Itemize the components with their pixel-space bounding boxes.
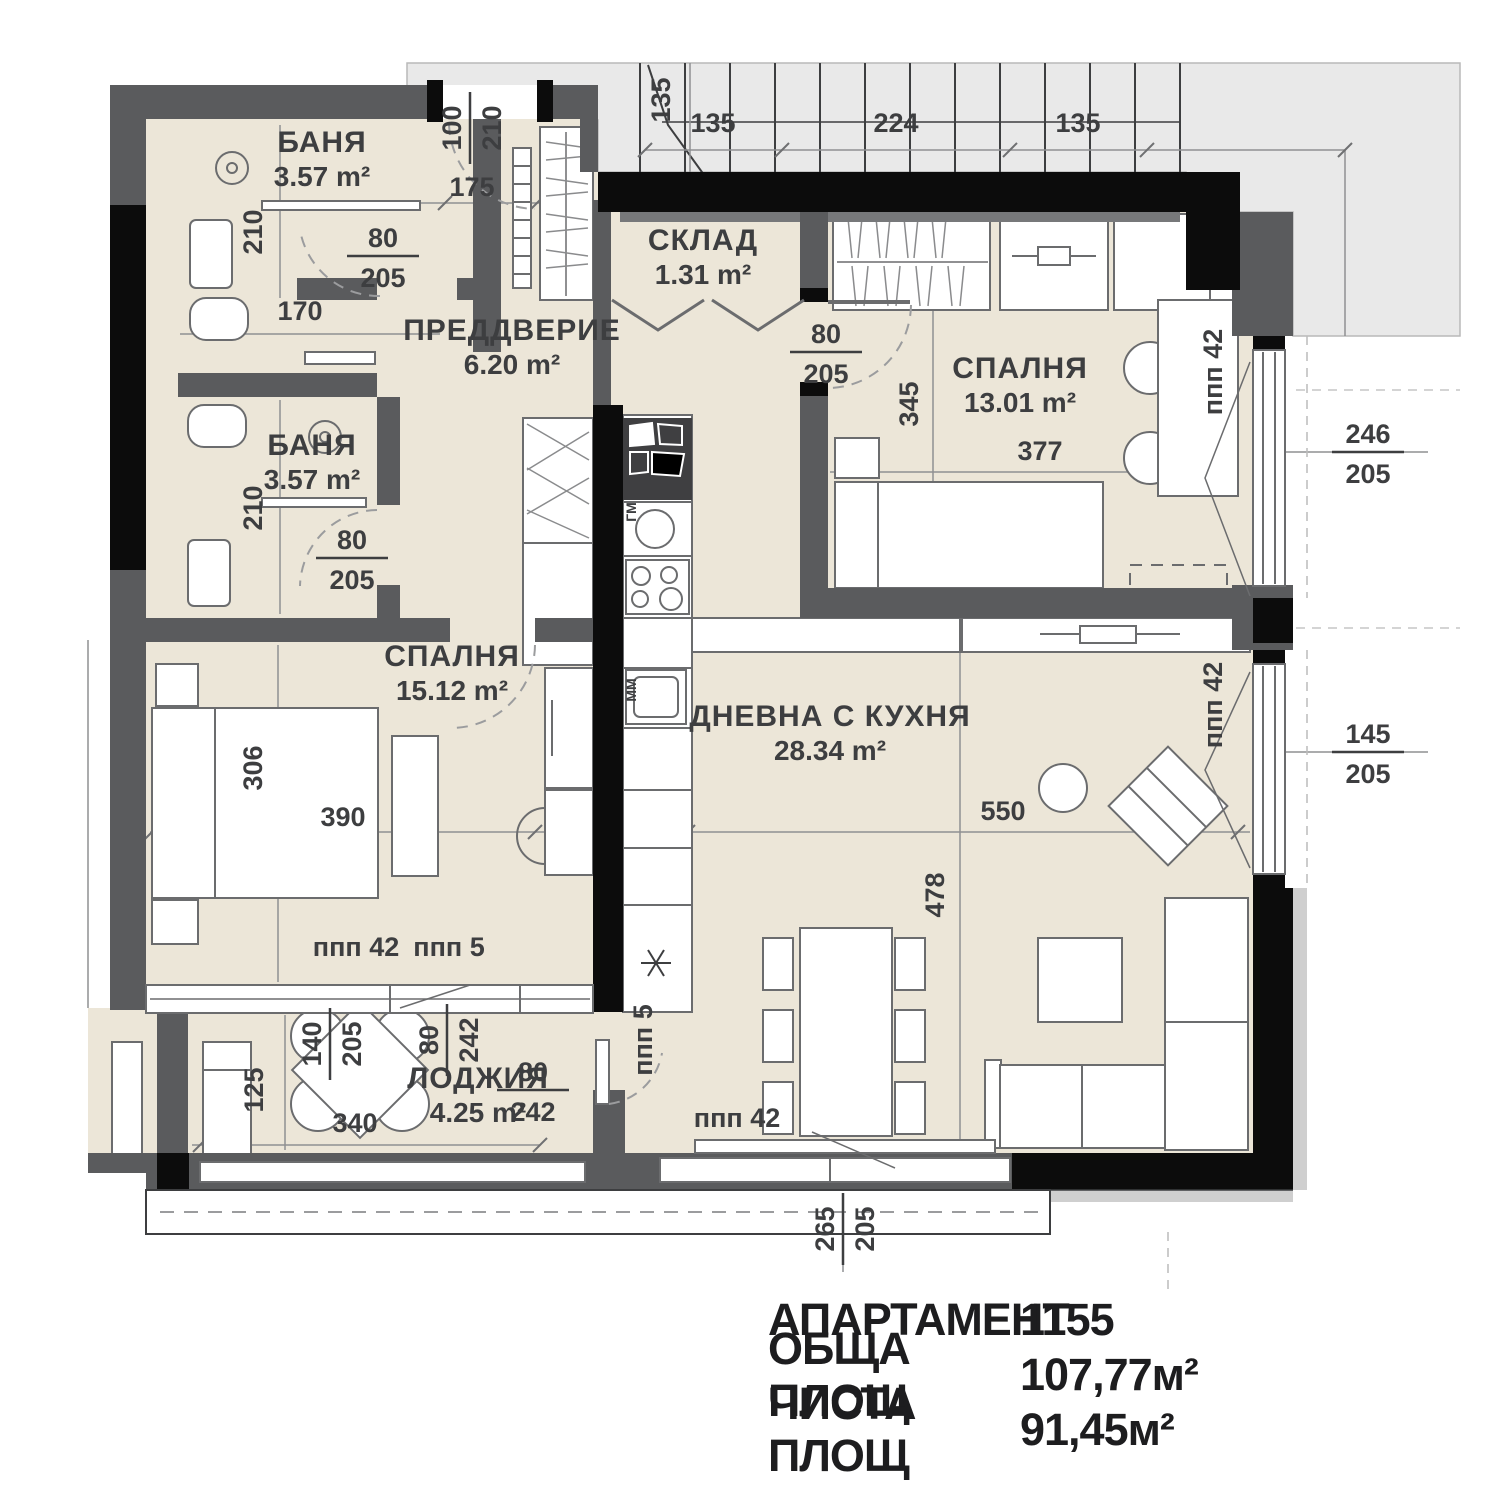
summary-value: 107,77м² xyxy=(1020,1349,1198,1401)
dimension-label: 125 xyxy=(239,1067,269,1112)
bench xyxy=(392,736,438,876)
fraction-top: 80 xyxy=(518,1057,548,1087)
dimension-label: 175 xyxy=(449,172,494,202)
fraction-bottom: 242 xyxy=(510,1097,555,1127)
sink-2 xyxy=(188,540,230,606)
wall-sklad-left xyxy=(593,200,611,405)
fraction-bottom: 242 xyxy=(454,1017,484,1062)
fraction-top: 265 xyxy=(810,1206,840,1251)
wall-top-black xyxy=(598,172,1186,212)
dresser-bedroom13 xyxy=(1000,214,1108,310)
room-label-spalnya-13: СПАЛНЯ xyxy=(952,352,1088,385)
room-area-banya-1: 3.57 m² xyxy=(274,161,371,192)
dining-set xyxy=(763,928,925,1136)
dimension-label: 224 xyxy=(873,108,918,138)
wall-right-top xyxy=(1232,212,1293,336)
loggia-parapet-glass xyxy=(200,1162,585,1182)
fraction-bottom: 205 xyxy=(803,359,848,389)
sink-1 xyxy=(190,220,232,288)
toilet-2 xyxy=(188,405,246,447)
fraction-bottom: 205 xyxy=(360,263,405,293)
room-area-sklad: 1.31 m² xyxy=(655,259,752,290)
wall-right-black xyxy=(1253,888,1293,1190)
dimension-label: 135 xyxy=(1055,108,1100,138)
fraction-top: 80 xyxy=(368,223,398,253)
wall-bedroom13-bottom xyxy=(800,588,1253,618)
room-label-sklad: СКЛАД xyxy=(648,224,758,257)
wall-kitchen-black xyxy=(593,405,623,1012)
room-area-spalnya-15: 15.12 m² xyxy=(396,675,508,706)
summary-value: 91,45м² xyxy=(1020,1404,1174,1456)
dimension-label: 135 xyxy=(690,108,735,138)
cabinet-symbol-4 xyxy=(652,452,684,476)
toilet-1 xyxy=(190,298,248,340)
room-area-preddverie: 6.20 m² xyxy=(464,349,561,380)
floor-plan-drawing: БАНЯ3.57 m²БАНЯ3.57 m²ПРЕДДВЕРИЕ6.20 m²С… xyxy=(0,0,1500,1500)
kitchen-sink xyxy=(636,510,674,548)
fraction-top: 80 xyxy=(337,525,367,555)
mirror-shelf-2 xyxy=(262,498,366,507)
radiator xyxy=(513,148,531,288)
wall-connector xyxy=(580,119,598,172)
loggia-door-leaf xyxy=(596,1040,609,1104)
fraction-top: 140 xyxy=(297,1021,327,1066)
console-shelf xyxy=(305,352,375,364)
fraction-bottom: 205 xyxy=(1345,759,1390,789)
nightstand-bottom xyxy=(152,900,198,944)
summary-label: ЧИСТА ПЛОЩ xyxy=(768,1378,1020,1482)
dimension-label: ММ xyxy=(623,678,639,701)
room-area-spalnya-13: 13.01 m² xyxy=(964,387,1076,418)
cabinet-symbol-1 xyxy=(630,423,654,446)
fraction-bottom: 205 xyxy=(850,1206,880,1251)
wall-bedroom15-top xyxy=(146,618,450,642)
dimension-label: ппп 5 xyxy=(413,932,484,962)
fraction-dimension: 246205 xyxy=(1332,419,1404,489)
fraction-top: 246 xyxy=(1345,419,1390,449)
wall-loggia-left xyxy=(157,1008,188,1153)
dimension-label: 340 xyxy=(332,1108,377,1138)
apartment-summary: АПАРТАМЕНТ 1155 ОБЩА ПЛОЩ 107,77м² ЧИСТА… xyxy=(768,1292,1368,1457)
wall-bedroom13-left xyxy=(800,212,828,290)
wall-bottom-black xyxy=(1012,1153,1293,1190)
entry-jamb-right xyxy=(537,80,553,122)
fraction-bottom: 205 xyxy=(1345,459,1390,489)
dimension-label: 210 xyxy=(238,485,268,530)
dimension-label: 390 xyxy=(320,802,365,832)
nightstand-bedroom13 xyxy=(835,438,879,478)
window-bedroom15 xyxy=(146,985,593,1013)
side-table xyxy=(1039,764,1087,812)
fraction-top: 80 xyxy=(414,1025,444,1055)
dimension-label: 377 xyxy=(1017,436,1062,466)
column-right-mid xyxy=(1253,598,1293,643)
neighbor-lounge-chair xyxy=(112,1042,142,1154)
room-area-banya-2: 3.57 m² xyxy=(264,464,361,495)
room-label-preddverie: ПРЕДДВЕРИЕ xyxy=(403,314,621,347)
room-label-spalnya-15: СПАЛНЯ xyxy=(384,640,520,673)
column-loggia xyxy=(157,1153,189,1190)
dimension-label: ппп 42 xyxy=(313,932,399,962)
nightstand-top xyxy=(156,664,198,706)
dimension-label: ппп 42 xyxy=(694,1103,780,1133)
summary-row: ЧИСТА ПЛОЩ 91,45м² xyxy=(768,1402,1368,1457)
dimension-label: 478 xyxy=(920,872,950,917)
dimension-label: 170 xyxy=(277,296,322,326)
dimension-label: ппп 42 xyxy=(1198,329,1228,415)
room-label-dnevna: ДНЕВНА С КУХНЯ xyxy=(689,700,970,733)
tv-sideboard xyxy=(962,618,1250,652)
dimension-label: ппп 42 xyxy=(1198,662,1228,748)
fraction-top: 100 xyxy=(437,105,467,150)
column-left xyxy=(110,205,146,570)
room-area-dnevna: 28.34 m² xyxy=(774,735,886,766)
mirror-shelf-1 xyxy=(262,201,420,210)
fraction-bottom: 210 xyxy=(477,105,507,150)
dimension-label: 345 xyxy=(894,381,924,426)
coffee-table xyxy=(1038,938,1122,1022)
dimension-label: ГМ xyxy=(623,502,639,522)
summary-value: 1155 xyxy=(1020,1294,1114,1346)
fraction-top: 80 xyxy=(811,319,841,349)
room-label-banya-2: БАНЯ xyxy=(267,429,356,462)
floor-plan-page: БАНЯ3.57 m²БАНЯ3.57 m²ПРЕДДВЕРИЕ6.20 m²С… xyxy=(0,0,1500,1500)
room-label-banya-1: БАНЯ xyxy=(277,126,366,159)
fraction-top: 145 xyxy=(1345,719,1390,749)
dimension-label: 210 xyxy=(238,209,268,254)
wardrobe-bedroom13 xyxy=(833,214,990,310)
bed-bedroom13 xyxy=(835,482,1103,588)
dimension-label: ппп 5 xyxy=(628,1004,658,1075)
column-top-right xyxy=(1186,172,1240,290)
fraction-bottom: 205 xyxy=(329,565,374,595)
dimension-label: 135 xyxy=(646,77,676,122)
fraction-dimension: 145205 xyxy=(1332,719,1404,789)
dimension-label: 306 xyxy=(238,745,268,790)
window-living-bottom xyxy=(660,1132,1010,1182)
dimension-label: 550 xyxy=(980,796,1025,826)
sideboard-left xyxy=(692,618,960,652)
fraction-bottom: 205 xyxy=(337,1021,367,1066)
